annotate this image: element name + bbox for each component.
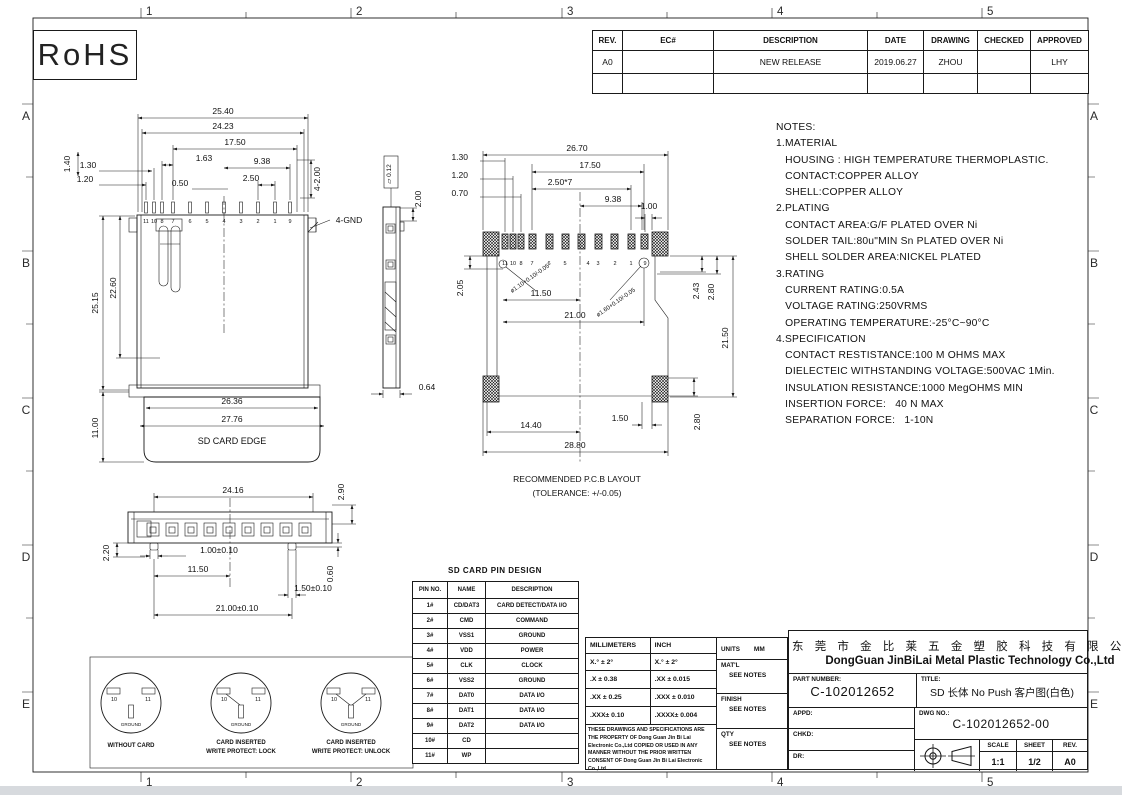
pin-no: 10# <box>413 734 448 749</box>
pin-name: DAT0 <box>448 689 486 704</box>
empty-cell <box>593 74 623 94</box>
pin-no: 8# <box>413 704 448 719</box>
dwg-no-value: C-102012652-00 <box>915 717 1087 731</box>
matl-label: MAT'L <box>721 662 787 669</box>
pin-no-header: PIN NO. <box>413 582 448 599</box>
tolerance-col-mm: MILLIMETERS <box>586 638 651 653</box>
description-header: DESCRIPTION <box>714 31 868 51</box>
dwg-no-cell: DWG NO.: C-102012652-00 <box>915 708 1087 740</box>
pin-design-table: PIN NO. NAME DESCRIPTION 1#CD/DAT3CARD D… <box>412 581 579 764</box>
pin-desc: POWER <box>486 644 579 659</box>
units-cell: UNITS MM <box>717 638 787 660</box>
dwg-no-label: DWG NO.: <box>915 708 1087 717</box>
tol-inch-3: .XXXX± 0.004 <box>651 707 716 724</box>
pin-desc: CARD DETECT/DATA I/O <box>486 599 579 614</box>
empty-cell <box>924 74 978 94</box>
empty-cell <box>1031 74 1089 94</box>
date-header: DATE <box>868 31 924 51</box>
pin-desc: DATA I/O <box>486 704 579 719</box>
pin-desc-header: DESCRIPTION <box>486 582 579 599</box>
pin-name: VSS2 <box>448 674 486 689</box>
empty-cell <box>868 74 924 94</box>
title-label: TITLE: <box>917 674 1087 683</box>
tol-mm-2: .XX ± 0.25 <box>586 689 651 706</box>
scale-value: 1:1 <box>980 752 1016 771</box>
revision-header-row: REV. EC# DESCRIPTION DATE DRAWING CHECKE… <box>593 31 1089 51</box>
pin-no: 6# <box>413 674 448 689</box>
title-cell: TITLE: SD 长体 No Push 客户图(白色) <box>917 674 1087 707</box>
finish-value: SEE NOTES <box>729 706 787 713</box>
rev-cell: REV. A0 <box>1053 740 1087 771</box>
approved-header: APPROVED <box>1031 31 1089 51</box>
date-cell: 2019.06.27 <box>868 51 924 74</box>
pin-name: WP <box>448 749 486 764</box>
pin-no: 9# <box>413 719 448 734</box>
pin-desc: COMMAND <box>486 614 579 629</box>
pin-name: CLK <box>448 659 486 674</box>
pin-row: 10#CD <box>413 734 579 749</box>
sheet-label: SHEET <box>1017 740 1052 752</box>
notes-block: NOTES: 1.MATERIAL HOUSING : HIGH TEMPERA… <box>776 120 1055 430</box>
pin-name: DAT1 <box>448 704 486 719</box>
pin-name-header: NAME <box>448 582 486 599</box>
pin-row: 2#CMDCOMMAND <box>413 614 579 629</box>
drawing-disclaimer: THESE DRAWINGS AND SPECIFICATIONS ARE TH… <box>586 725 716 776</box>
units-label: UNITS <box>721 646 740 653</box>
scale-cell: SCALE 1:1 <box>980 740 1017 771</box>
pin-no: 4# <box>413 644 448 659</box>
chkd-label: CHKD: <box>789 729 914 750</box>
pin-no: 1# <box>413 599 448 614</box>
description-cell: NEW RELEASE <box>714 51 868 74</box>
tol-mm-3: .XXX± 0.10 <box>586 707 651 724</box>
pin-row: 8#DAT1DATA I/O <box>413 704 579 719</box>
pin-desc: GROUND <box>486 674 579 689</box>
pin-name: CD <box>448 734 486 749</box>
revision-row: A0 NEW RELEASE 2019.06.27 ZHOU LHY <box>593 51 1089 74</box>
pin-name: CD/DAT3 <box>448 599 486 614</box>
drawing-sheet: 1 2 3 4 5 1 2 3 4 5 A B C D E A B C D E <box>0 0 1122 795</box>
pin-no: 2# <box>413 614 448 629</box>
part-number-cell: PART NUMBER: C-102012652 <box>789 674 917 707</box>
pin-desc: CLOCK <box>486 659 579 674</box>
info-block: UNITS MM MAT'L SEE NOTES FINISH SEE NOTE… <box>717 637 788 770</box>
pin-row: 4#VDDPOWER <box>413 644 579 659</box>
pin-no: 7# <box>413 689 448 704</box>
pin-name: DAT2 <box>448 719 486 734</box>
ec-header: EC# <box>623 31 714 51</box>
rev-header: REV. <box>593 31 623 51</box>
sheet-cell: SHEET 1/2 <box>1017 740 1053 771</box>
ec-cell <box>623 51 714 74</box>
finish-label: FINISH <box>721 696 787 703</box>
company-name-cn: 东 莞 市 金 比 莱 五 金 塑 胶 科 技 有 限 公 司 <box>792 638 1122 654</box>
signature-column: APPD: CHKD: DR: <box>789 708 915 771</box>
company-band: 东 莞 市 金 比 莱 五 金 塑 胶 科 技 有 限 公 司 DongGuan… <box>789 631 1087 674</box>
title-value: SD 长体 No Push 客户图(白色) <box>917 685 1087 700</box>
pin-no: 11# <box>413 749 448 764</box>
qty-label: QTY <box>721 731 787 738</box>
pin-row: 5#CLKCLOCK <box>413 659 579 674</box>
finish-cell: FINISH SEE NOTES <box>717 694 787 729</box>
pin-name: VSS1 <box>448 629 486 644</box>
pin-no: 3# <box>413 629 448 644</box>
matl-value: SEE NOTES <box>729 672 787 679</box>
drawing-cell: ZHOU <box>924 51 978 74</box>
rohs-mark: RoHS <box>33 30 137 80</box>
pin-desc: GROUND <box>486 629 579 644</box>
tol-mm-angle: X.° ± 2° <box>586 654 651 670</box>
tol-inch-1: .XX ± 0.015 <box>651 671 716 688</box>
units-value: MM <box>754 646 765 653</box>
part-number-value: C-102012652 <box>789 684 916 699</box>
rev-label: REV. <box>1053 740 1087 752</box>
pin-name: VDD <box>448 644 486 659</box>
pin-table-title: SD CARD PIN DESIGN <box>412 566 578 575</box>
revision-table: REV. EC# DESCRIPTION DATE DRAWING CHECKE… <box>592 30 1089 94</box>
title-block: 东 莞 市 金 比 莱 五 金 塑 胶 科 技 有 限 公 司 DongGuan… <box>788 630 1088 770</box>
tol-inch-angle: X.° ± 2° <box>651 654 716 670</box>
checked-header: CHECKED <box>978 31 1031 51</box>
pin-no: 5# <box>413 659 448 674</box>
sheet-value: 1/2 <box>1017 752 1052 771</box>
third-angle-projection-icon <box>917 741 977 771</box>
appd-label: APPD: <box>789 708 914 729</box>
pin-row: 7#DAT0DATA I/O <box>413 689 579 704</box>
empty-cell <box>623 74 714 94</box>
rev-cell: A0 <box>593 51 623 74</box>
dr-label: DR: <box>789 751 914 771</box>
pin-desc <box>486 749 579 764</box>
drawing-header: DRAWING <box>924 31 978 51</box>
pin-desc: DATA I/O <box>486 689 579 704</box>
rev-value: A0 <box>1053 752 1087 771</box>
part-number-label: PART NUMBER: <box>789 674 916 683</box>
projection-symbol-cell <box>915 740 980 771</box>
company-name-en: DongGuan JinBiLai Metal Plastic Technolo… <box>792 655 1122 667</box>
pin-row: 11#WP <box>413 749 579 764</box>
empty-cell <box>978 74 1031 94</box>
tolerance-col-inch: INCH <box>651 638 716 653</box>
qty-cell: QTY SEE NOTES <box>717 729 787 763</box>
checked-cell <box>978 51 1031 74</box>
pin-desc <box>486 734 579 749</box>
revision-empty-row <box>593 74 1089 94</box>
approved-cell: LHY <box>1031 51 1089 74</box>
pin-header-row: PIN NO. NAME DESCRIPTION <box>413 582 579 599</box>
footer-bar <box>0 786 1122 795</box>
pin-row: 3#VSS1GROUND <box>413 629 579 644</box>
tol-mm-1: .X ± 0.38 <box>586 671 651 688</box>
qty-value: SEE NOTES <box>729 741 787 748</box>
empty-cell <box>714 74 868 94</box>
pin-desc: DATA I/O <box>486 719 579 734</box>
tolerance-table: MILLIMETERS INCH X.° ± 2° X.° ± 2° .X ± … <box>585 637 717 770</box>
matl-cell: MAT'L SEE NOTES <box>717 660 787 694</box>
tol-inch-2: .XXX ± 0.010 <box>651 689 716 706</box>
pin-row: 6#VSS2GROUND <box>413 674 579 689</box>
pin-name: CMD <box>448 614 486 629</box>
pin-row: 1#CD/DAT3CARD DETECT/DATA I/O <box>413 599 579 614</box>
scale-label: SCALE <box>980 740 1016 752</box>
pin-row: 9#DAT2DATA I/O <box>413 719 579 734</box>
